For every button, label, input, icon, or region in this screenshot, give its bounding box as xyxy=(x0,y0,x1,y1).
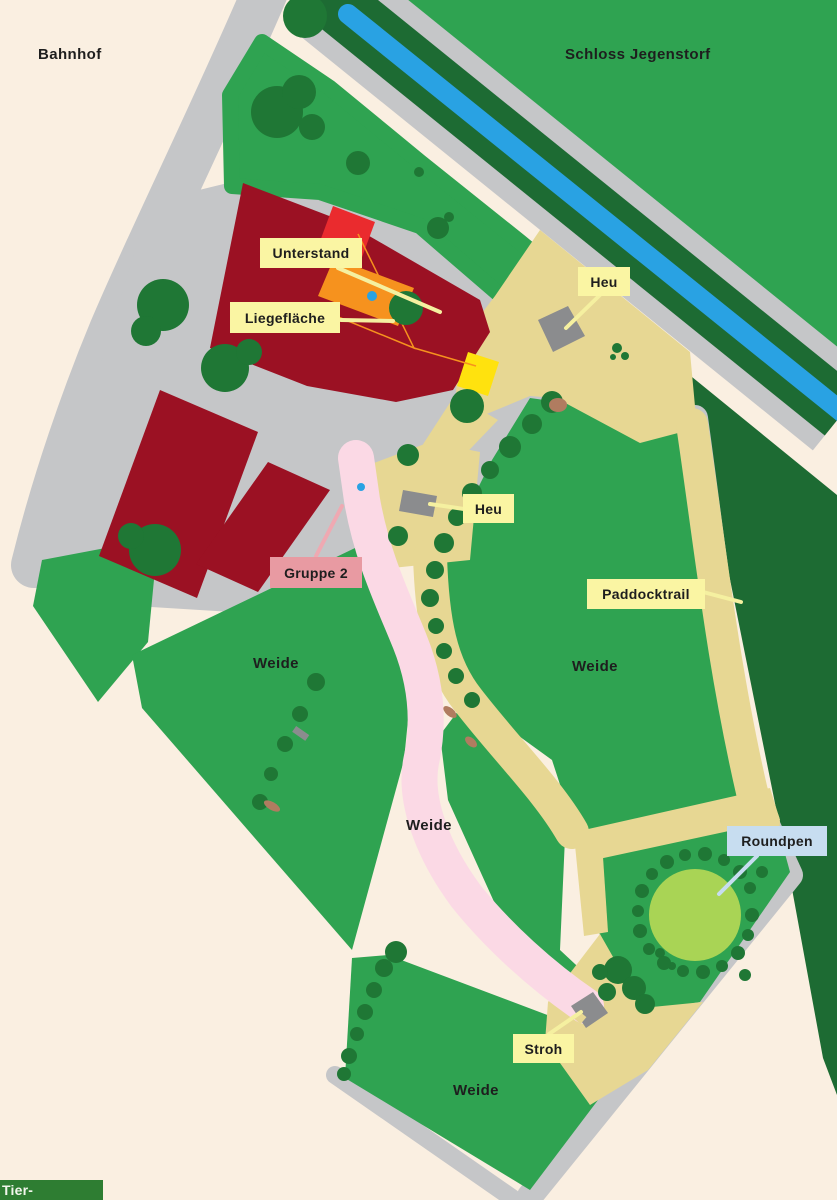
blue-marker-2 xyxy=(357,483,365,491)
roundpen-circle xyxy=(649,869,741,961)
label-roundpen: Roundpen xyxy=(727,826,827,856)
label-bahnhof: Bahnhof xyxy=(38,46,102,63)
label-weide-left: Weide xyxy=(253,655,299,672)
blue-marker-1 xyxy=(367,291,377,301)
label-schloss: Schloss Jegenstorf xyxy=(565,46,711,63)
label-liegeflaeche: Liegefläche xyxy=(230,302,340,333)
label-weide-center: Weide xyxy=(572,658,618,675)
label-weide-bottom: Weide xyxy=(453,1082,499,1099)
label-heu-west: Heu xyxy=(463,494,514,523)
label-unterstand: Unterstand xyxy=(260,238,362,268)
map-canvas xyxy=(0,0,837,1200)
watermark: Tier-Inserate.ch xyxy=(0,1180,103,1200)
label-stroh: Stroh xyxy=(513,1034,574,1063)
label-paddocktrail: Paddocktrail xyxy=(587,579,705,609)
site-map: Bahnhof Schloss Jegenstorf Weide Weide W… xyxy=(0,0,837,1200)
label-weide-middle: Weide xyxy=(406,817,452,834)
label-heu-north: Heu xyxy=(578,267,630,296)
label-gruppe2: Gruppe 2 xyxy=(270,557,362,588)
